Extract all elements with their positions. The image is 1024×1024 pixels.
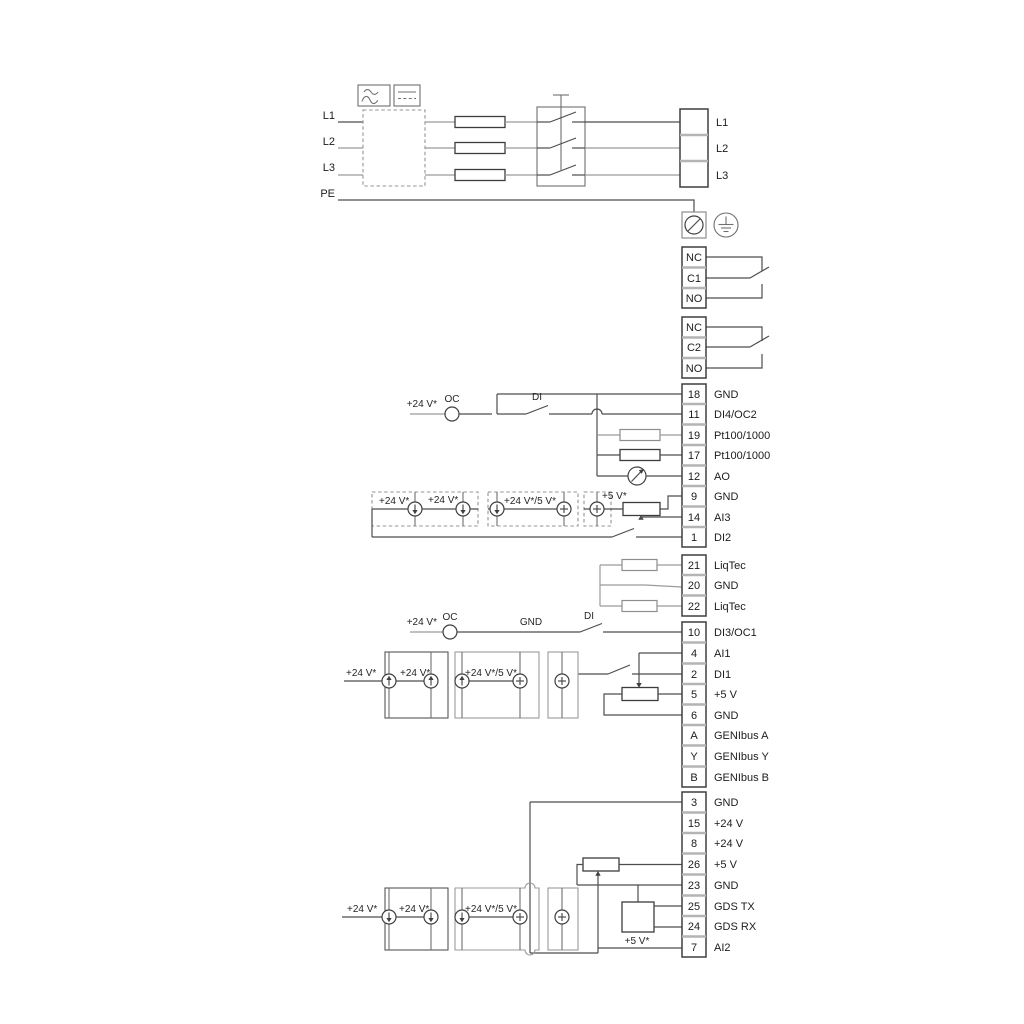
liqtec-sensor	[622, 601, 657, 612]
relay-no-wire	[706, 354, 762, 368]
terminal-number: 3	[691, 797, 697, 809]
io-c-section: +5 V* +24 V* +24 V* +24 V*/5 V*	[342, 792, 757, 957]
converter-box	[363, 110, 425, 186]
terminal-label: AO	[714, 471, 730, 483]
phase-l2-label: L2	[323, 136, 335, 148]
terminal-number: 9	[691, 491, 697, 503]
terminal-number: 8	[691, 838, 697, 850]
terminal-label: GND	[714, 389, 739, 401]
terminal-number: 14	[688, 512, 700, 524]
terminal-number: 6	[691, 710, 697, 722]
terminal-number: 20	[688, 580, 700, 592]
relay1-section: NC C1 NO	[682, 247, 769, 308]
fuse	[455, 143, 505, 154]
terminal-number: 12	[688, 471, 700, 483]
v24-label: +24 V*	[407, 617, 437, 628]
terminal-label: AI2	[714, 942, 731, 954]
dc-symbol-box	[394, 85, 420, 106]
wiper-arrowhead	[595, 871, 600, 876]
fuse	[455, 117, 505, 128]
gds-sensor-box	[622, 902, 654, 932]
switch-contact	[550, 112, 576, 122]
terminal-number: 26	[688, 859, 700, 871]
terminal-number: A	[690, 730, 698, 742]
terminal-number: Y	[690, 751, 698, 763]
v24-label: +24 V*	[346, 668, 376, 679]
liqtec-section: 21 LiqTec 20 GND 22 LiqTec	[600, 555, 746, 616]
di-label: DI	[584, 611, 594, 622]
terminal-label: L1	[716, 117, 728, 129]
terminal-number: 22	[688, 601, 700, 613]
v24-5v-label: +24 V*/5 V*	[465, 668, 517, 679]
terminal-label: GND	[714, 710, 739, 722]
oc-label: OC	[445, 394, 460, 405]
terminal-label: +5 V	[714, 859, 738, 871]
terminal-label: GND	[714, 797, 739, 809]
v24-label: +24 V*	[428, 495, 458, 506]
ac-wave-icon	[362, 96, 378, 103]
terminal-label: LiqTec	[714, 601, 746, 613]
ac-wave-icon	[364, 90, 378, 95]
terminal-label: GENIbus A	[714, 730, 769, 742]
terminal-number: 17	[688, 450, 700, 462]
ac-symbol-box	[358, 85, 390, 106]
pt100-sensor	[620, 430, 660, 441]
terminal-number: 24	[688, 921, 700, 933]
relay-contact	[750, 336, 769, 347]
terminal-label: DI4/OC2	[714, 409, 757, 421]
liqtec-sensor	[622, 560, 657, 571]
open-collector-icon	[443, 625, 457, 639]
terminal-number: C2	[687, 342, 701, 354]
terminal-label: AI1	[714, 648, 731, 660]
terminal-number: 7	[691, 942, 697, 954]
relay-no-wire	[706, 284, 762, 298]
pe-label: PE	[320, 188, 335, 200]
mains-terminal-block	[680, 109, 708, 187]
terminal-number: 4	[691, 648, 697, 660]
terminal-number: 1	[691, 532, 697, 544]
terminal-label: GND	[714, 491, 739, 503]
power-section: L1 L2 L3 PE	[320, 85, 738, 238]
terminal-number: 19	[688, 430, 700, 442]
terminal-number: 25	[688, 901, 700, 913]
terminal-number: 10	[688, 627, 700, 639]
io-b-section: +24 V* OC GND DI	[344, 611, 769, 787]
potentiometer	[622, 688, 658, 701]
terminal-label: AI3	[714, 512, 731, 524]
terminal-label: L3	[716, 170, 728, 182]
v24-label: +24 V*	[400, 668, 430, 679]
terminal-number: NO	[686, 293, 703, 305]
v5-label: +5 V*	[602, 491, 627, 502]
terminal-label: DI3/OC1	[714, 627, 757, 639]
phase-l3-label: L3	[323, 162, 335, 174]
terminal-label: LiqTec	[714, 560, 746, 572]
wire	[577, 865, 583, 886]
v5-label: +5 V*	[625, 936, 650, 947]
switch-contact	[550, 165, 576, 175]
pe-wire	[338, 200, 694, 212]
fuse	[455, 170, 505, 181]
terminal-label: +24 V	[714, 838, 744, 850]
switch-contact	[550, 138, 576, 148]
pt100-sensor	[620, 450, 660, 461]
phase-l1-label: L1	[323, 110, 335, 122]
terminal-label: GDS TX	[714, 901, 755, 913]
wiring-diagram-page: L1 L2 L3 PE	[0, 0, 1024, 1024]
v24-label: +24 V*	[379, 496, 409, 507]
terminal-label: GDS RX	[714, 921, 757, 933]
terminal-label: Pt100/1000	[714, 450, 770, 462]
v24-5v-label: +24 V*/5 V*	[504, 496, 556, 507]
terminal-label: GND	[714, 580, 739, 592]
relay2-section: NC C2 NO	[682, 317, 769, 378]
terminal-label: L2	[716, 143, 728, 155]
terminal-number: 11	[688, 409, 699, 421]
terminal-number: NC	[686, 322, 702, 334]
di-switch-contact	[580, 624, 602, 633]
terminal-number: 23	[688, 880, 700, 892]
terminal-number: B	[690, 772, 697, 784]
terminal-number: 15	[688, 818, 700, 830]
terminal-label: +24 V	[714, 818, 744, 830]
relay-nc-wire	[706, 327, 762, 341]
terminal-label: DI2	[714, 532, 731, 544]
terminal-number: 18	[688, 389, 700, 401]
terminal-number: NO	[686, 363, 703, 375]
potentiometer	[583, 858, 619, 871]
gnd-label: GND	[520, 617, 542, 628]
oc-label: OC	[443, 612, 458, 623]
wiring-diagram: L1 L2 L3 PE	[0, 0, 1024, 1024]
di-switch-contact	[526, 406, 548, 415]
terminal-number: 2	[691, 669, 697, 681]
wire	[660, 496, 682, 509]
v24-label: +24 V*	[407, 399, 437, 410]
terminal-label: Pt100/1000	[714, 430, 770, 442]
relay-nc-wire	[706, 257, 762, 271]
di1-switch-contact	[608, 665, 630, 674]
v24-5v-label: +24 V*/5 V*	[465, 904, 517, 915]
wire	[645, 585, 682, 587]
terminal-number: NC	[686, 252, 702, 264]
di2-switch-contact	[612, 529, 634, 538]
open-collector-icon	[445, 407, 459, 421]
terminal-label: +5 V	[714, 689, 738, 701]
terminal-label: GND	[714, 880, 739, 892]
terminal-number: C1	[687, 273, 701, 285]
v24-label: +24 V*	[399, 904, 429, 915]
terminal-number: 21	[688, 560, 700, 572]
terminal-label: GENIbus B	[714, 772, 769, 784]
di-label: DI	[532, 392, 542, 403]
terminal-number: 5	[691, 689, 697, 701]
terminal-label: DI1	[714, 669, 731, 681]
io-a-section: +24 V* OC DI	[372, 384, 770, 547]
v24-label: +24 V*	[347, 904, 377, 915]
relay-contact	[750, 267, 769, 278]
potentiometer	[623, 503, 660, 516]
terminal-label: GENIbus Y	[714, 751, 769, 763]
